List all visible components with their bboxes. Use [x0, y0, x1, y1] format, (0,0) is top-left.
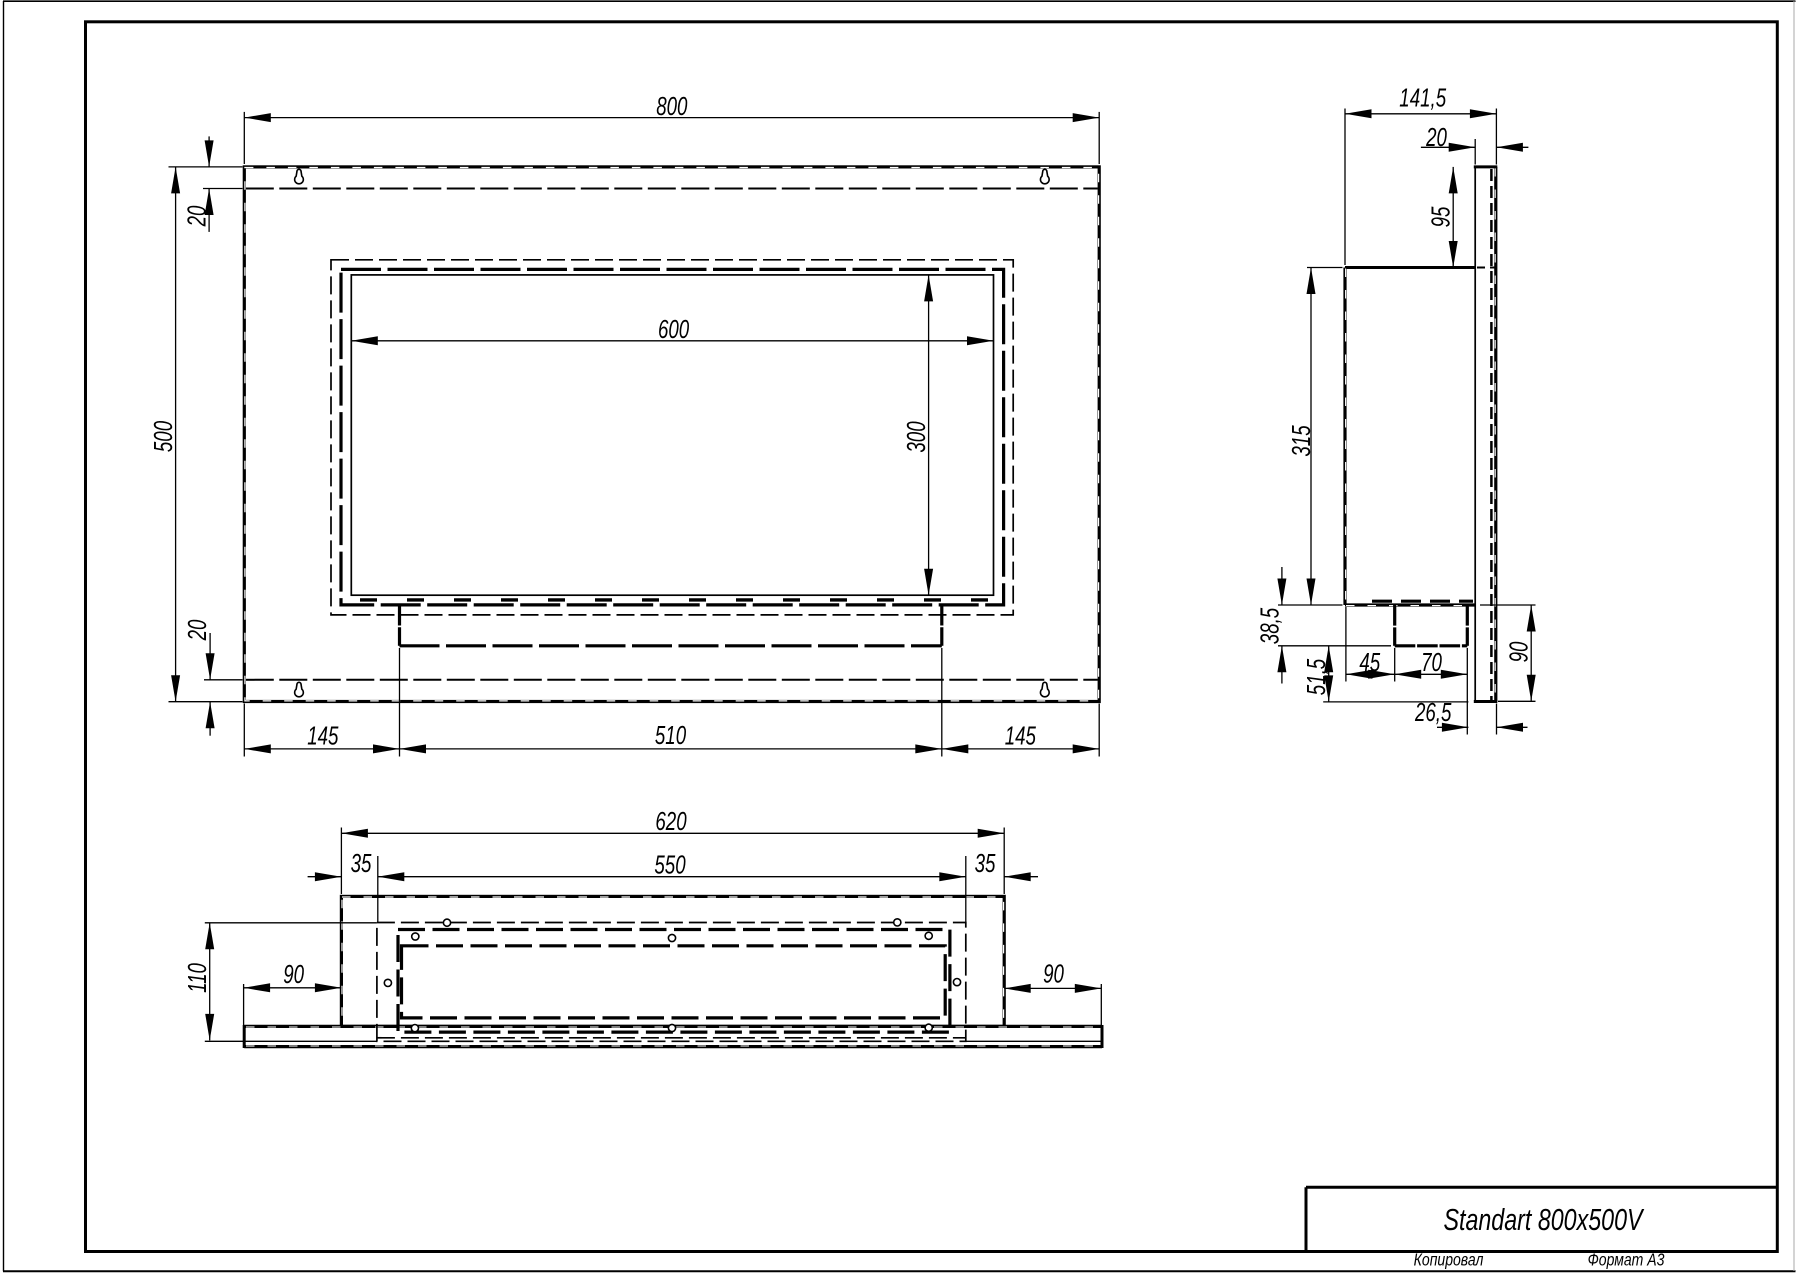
svg-text:95: 95 [1426, 206, 1456, 227]
svg-text:45: 45 [1359, 647, 1380, 677]
svg-text:90: 90 [283, 959, 304, 989]
svg-text:Standart 800x500V: Standart 800x500V [1443, 1202, 1644, 1237]
svg-text:51,5: 51,5 [1301, 658, 1331, 695]
svg-text:500: 500 [148, 421, 178, 453]
svg-text:315: 315 [1286, 425, 1316, 457]
svg-text:510: 510 [655, 720, 687, 750]
svg-text:35: 35 [975, 848, 996, 878]
svg-text:141,5: 141,5 [1399, 82, 1446, 112]
svg-text:26,5: 26,5 [1414, 697, 1452, 727]
svg-text:800: 800 [656, 91, 688, 121]
svg-text:300: 300 [901, 421, 931, 453]
svg-text:70: 70 [1421, 647, 1442, 677]
svg-text:90: 90 [1043, 958, 1064, 988]
svg-text:20: 20 [1425, 122, 1447, 152]
svg-text:Формат А3: Формат А3 [1588, 1250, 1665, 1270]
svg-text:110: 110 [182, 963, 212, 993]
svg-text:90: 90 [1504, 641, 1534, 662]
svg-text:620: 620 [655, 806, 687, 836]
svg-text:Копировал: Копировал [1414, 1250, 1484, 1270]
svg-text:20: 20 [182, 619, 212, 641]
svg-text:600: 600 [658, 314, 690, 344]
svg-text:145: 145 [1005, 720, 1037, 750]
svg-text:20: 20 [181, 205, 211, 227]
svg-text:145: 145 [307, 720, 339, 750]
svg-text:35: 35 [351, 848, 372, 878]
svg-text:550: 550 [654, 849, 686, 879]
svg-text:38,5: 38,5 [1254, 607, 1284, 644]
